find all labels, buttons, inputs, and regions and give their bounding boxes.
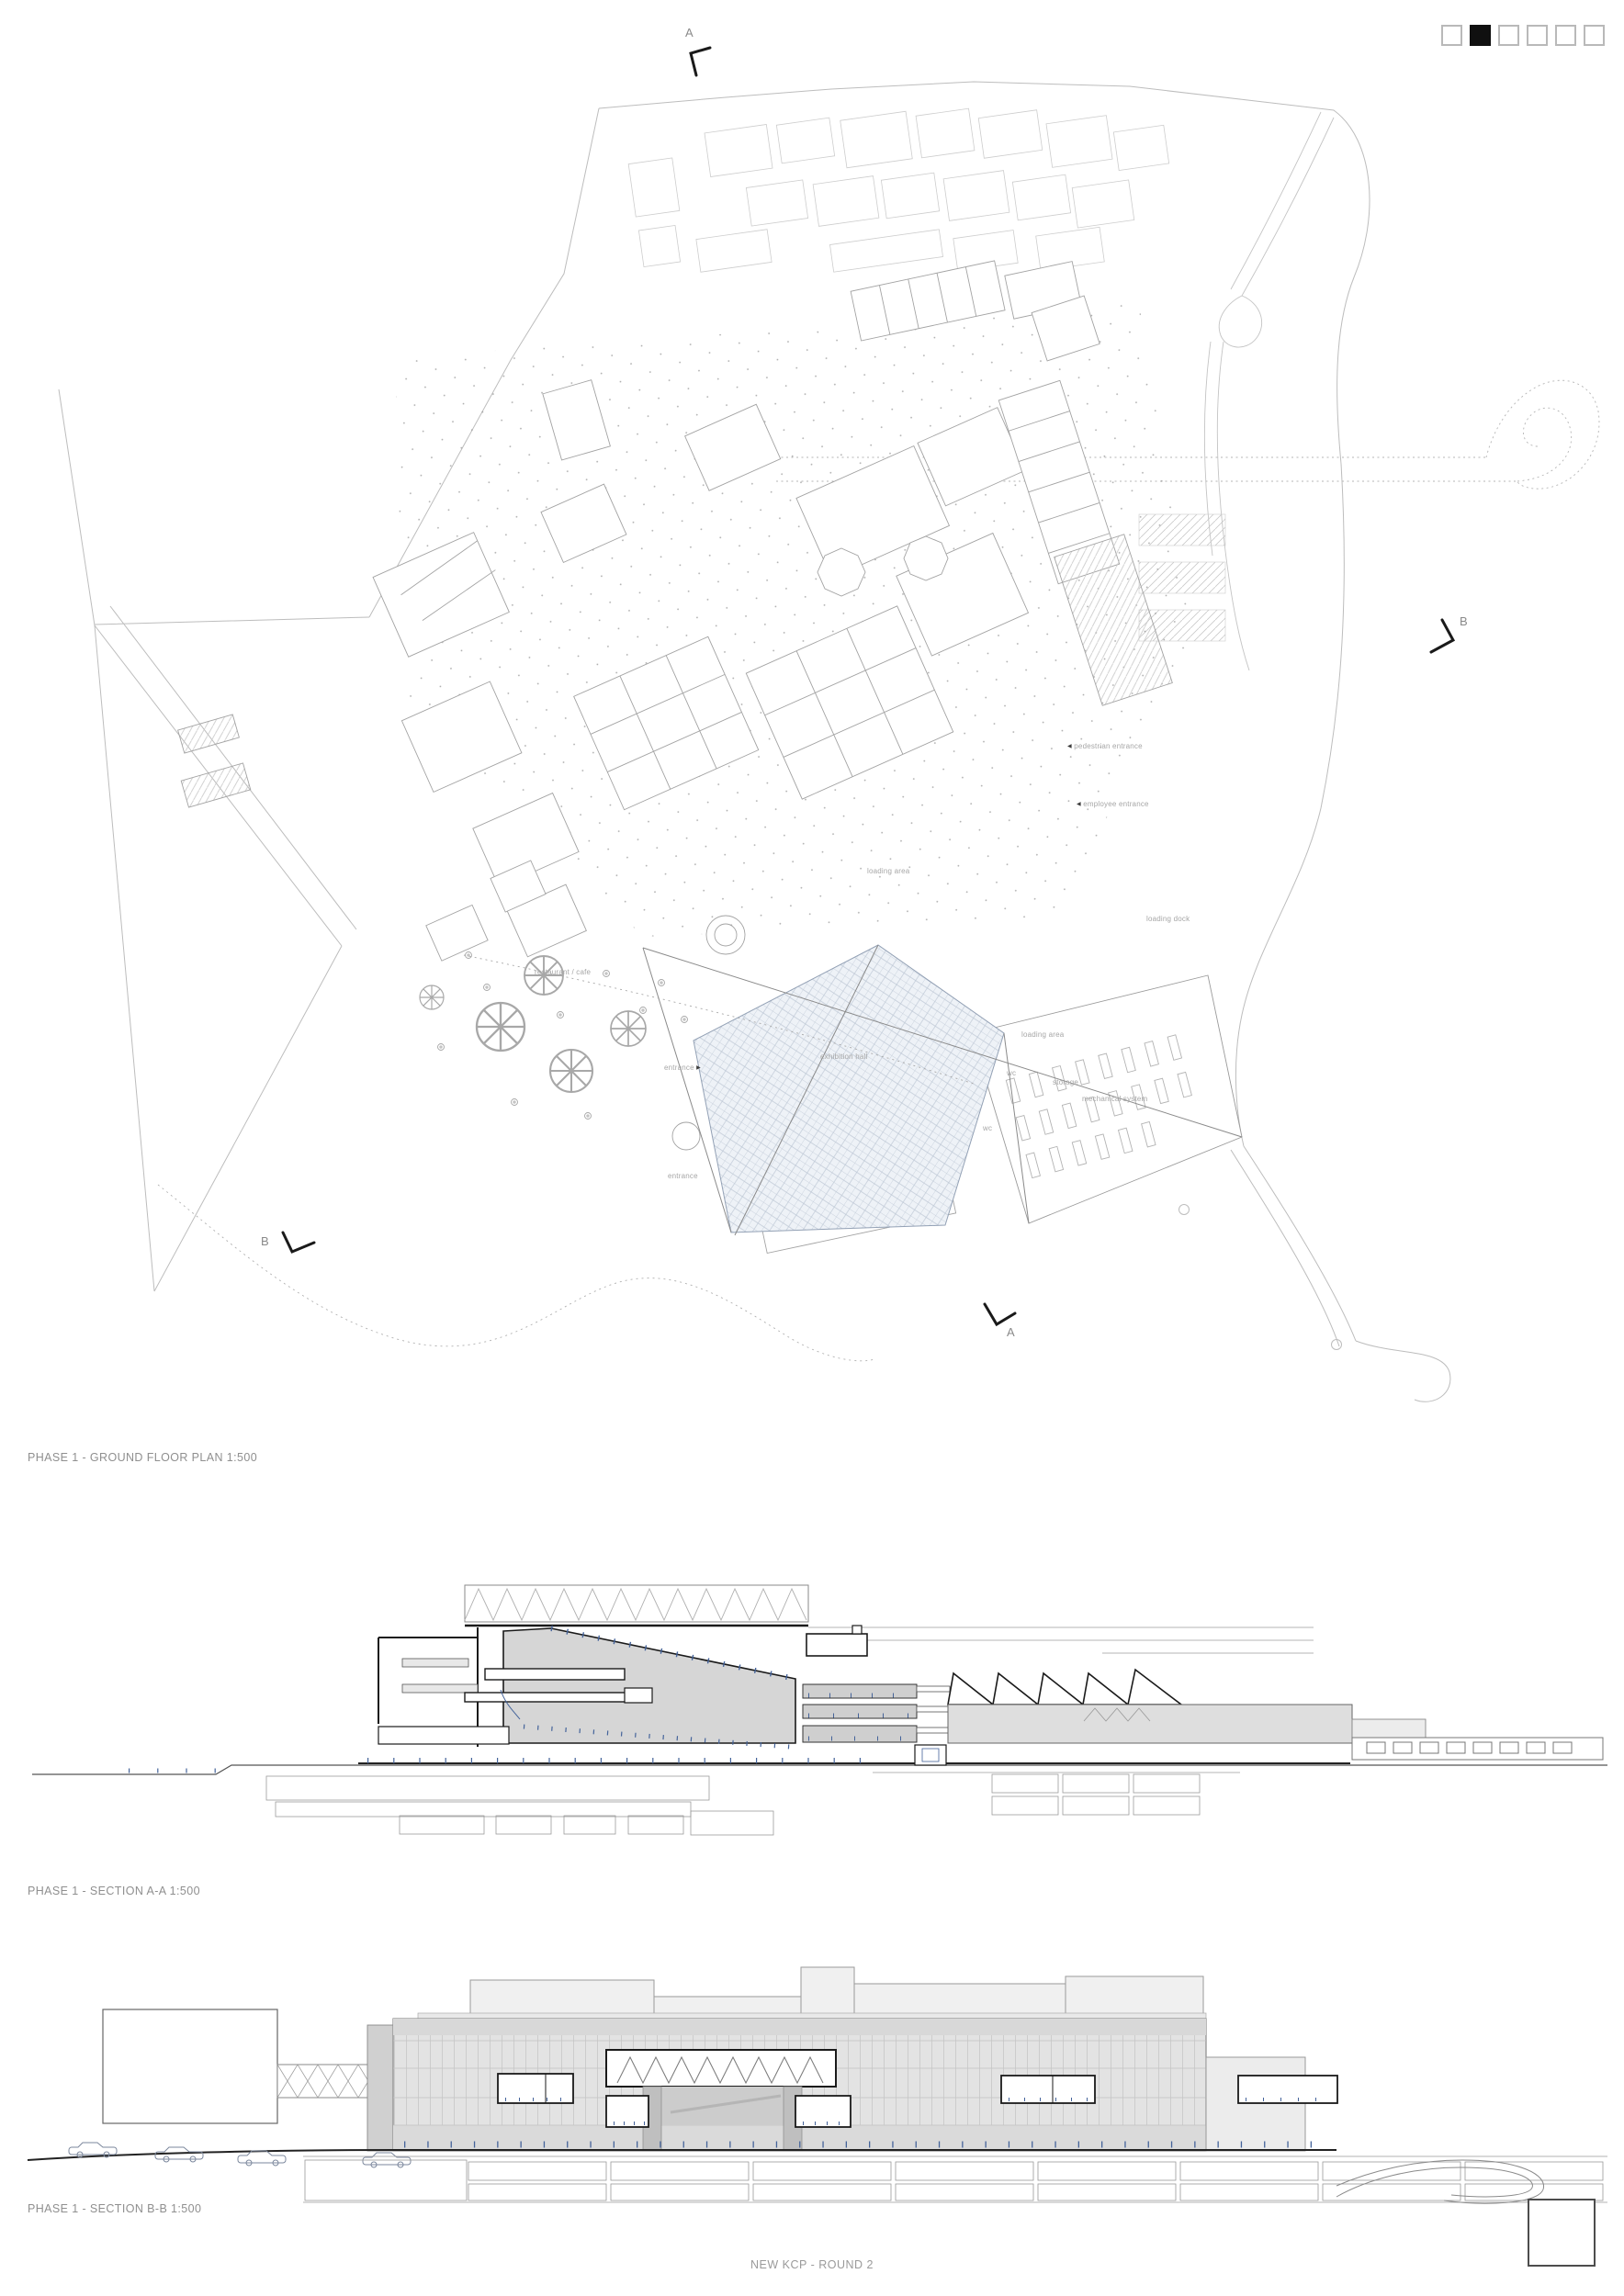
section-marker-label: B — [261, 1234, 269, 1248]
annotation-arrow-icon: ◀ — [1067, 744, 1072, 749]
page-indicator — [1441, 25, 1605, 46]
aa-roof-truss — [465, 1585, 808, 1626]
aa-far-right-platform — [1352, 1738, 1603, 1760]
context-city-blocks — [628, 108, 1168, 272]
plan-annotation: entrance ▶ — [664, 1064, 701, 1072]
plan-caption: PHASE 1 - GROUND FLOOR PLAN 1:500 — [28, 1451, 257, 1464]
plan-annotation: storage — [1053, 1078, 1078, 1086]
plan-annotation: entrance — [668, 1172, 698, 1180]
bb-left-building — [103, 2009, 277, 2123]
plan-annotation: loading area — [867, 867, 909, 875]
aa-basement — [266, 1773, 1240, 1835]
section-aa-caption: PHASE 1 - SECTION A-A 1:500 — [28, 1885, 200, 1897]
plan-annotation: restaurant / cafe — [535, 968, 591, 976]
sheet-title: NEW KCP - ROUND 2 — [0, 2258, 1624, 2271]
plan-annotation: wc — [1007, 1069, 1016, 1077]
section-marker-label: A — [1007, 1325, 1015, 1339]
page-indicator-square — [1470, 25, 1491, 46]
plan-annotation: ◀ employee entrance — [1077, 800, 1149, 808]
page-indicator-square — [1584, 25, 1605, 46]
annotation-arrow-icon: ▶ — [696, 1065, 701, 1071]
aa-upper-lines — [808, 1627, 1314, 1653]
annotation-arrow-icon: ◀ — [1077, 802, 1081, 807]
page-indicator-square — [1441, 25, 1462, 46]
bb-basement — [303, 2156, 1607, 2202]
page-indicator-square — [1498, 25, 1519, 46]
plan-annotation: exhibition hall — [820, 1052, 867, 1061]
section-marker-label: A — [685, 26, 694, 39]
bb-ground-line — [28, 2150, 1336, 2160]
plan-annotation: ◀ pedestrian entrance — [1067, 742, 1143, 750]
aa-auditorium — [478, 1627, 795, 1747]
section-aa-drawing — [32, 1585, 1607, 1835]
page-indicator-square — [1555, 25, 1576, 46]
exhibition-hall — [694, 945, 1004, 1232]
plan-annotation: mechanical system — [1082, 1095, 1147, 1103]
section-bb-drawing — [28, 1967, 1607, 2203]
aa-sawtooth-roofs — [948, 1670, 1426, 1743]
site-plan-drawing — [59, 48, 1599, 1401]
plan-annotation: loading area — [1021, 1030, 1064, 1039]
section-bb-caption: PHASE 1 - SECTION B-B 1:500 — [28, 2202, 201, 2215]
bb-roof-masses — [418, 1967, 1206, 2020]
aa-equipment-box — [915, 1745, 946, 1765]
presentation-sheet: PHASE 1 - GROUND FLOOR PLAN 1:500 PHASE … — [0, 0, 1624, 2296]
drawing-linework — [0, 0, 1624, 2296]
aa-right-floors — [803, 1626, 950, 1742]
plan-annotation: wc — [983, 1124, 992, 1132]
bb-ramp — [1336, 2160, 1544, 2203]
title-block-square — [1528, 2199, 1596, 2267]
section-marker-label: B — [1460, 614, 1468, 628]
plan-annotation: loading dock — [1146, 915, 1190, 923]
page-indicator-square — [1527, 25, 1548, 46]
